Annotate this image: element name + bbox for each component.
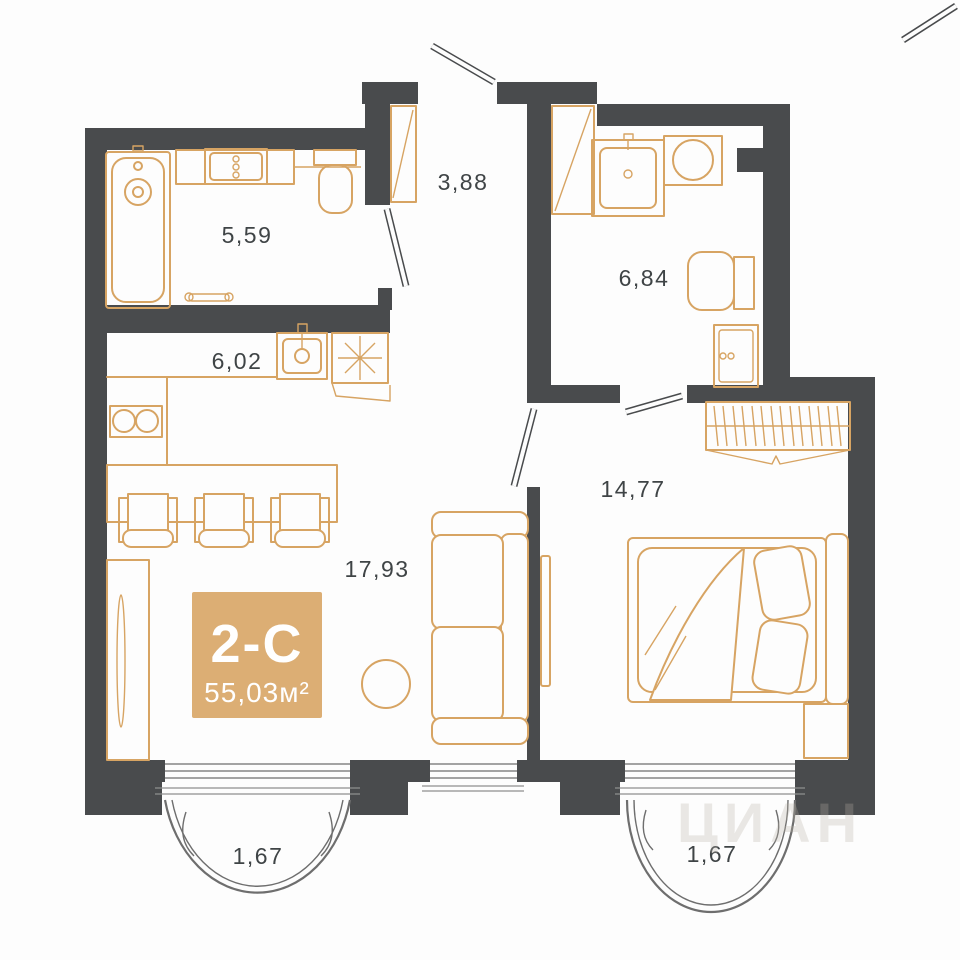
room-label-bathroom-2: 6,84 bbox=[619, 265, 670, 291]
bar-stool-icon bbox=[119, 494, 177, 547]
closet-hangers-icon bbox=[706, 402, 850, 464]
wall-right-outer bbox=[848, 377, 875, 815]
room-label-living-room: 17,93 bbox=[344, 556, 409, 582]
wall-top-bathroom1 bbox=[85, 128, 365, 150]
wall-bottom-2 bbox=[350, 760, 430, 782]
door-entrance bbox=[432, 46, 494, 82]
wall-top-bathroom2 bbox=[597, 104, 763, 126]
stove-icon bbox=[110, 406, 162, 437]
bar-stool-icon bbox=[195, 494, 253, 547]
wall-bathroom1-kitchen bbox=[85, 305, 390, 333]
window-balcony-left bbox=[155, 764, 360, 794]
floor-plan-canvas: 5,59 3,88 6,84 6,02 17,93 14,77 1,67 1,6… bbox=[0, 0, 960, 960]
floor-plan: 5,59 3,88 6,84 6,02 17,93 14,77 1,67 1,6… bbox=[0, 0, 960, 960]
wall-left-outer bbox=[85, 128, 107, 815]
door-bathroom-1 bbox=[387, 209, 406, 286]
room-label-bedroom: 14,77 bbox=[600, 476, 665, 502]
wall-pier-2 bbox=[350, 782, 408, 815]
table-icon bbox=[362, 660, 410, 708]
hob-star-icon bbox=[332, 333, 390, 401]
wall-pier-3 bbox=[560, 782, 620, 815]
wall-bedroom-top-left bbox=[551, 385, 620, 403]
bed-icon bbox=[628, 534, 848, 704]
wall-entrance-right bbox=[497, 82, 597, 104]
room-label-kitchen: 6,02 bbox=[212, 348, 263, 374]
window-middle bbox=[422, 764, 524, 791]
bar-stool-icon bbox=[271, 494, 329, 547]
nightstand-icon bbox=[804, 704, 848, 758]
door-bathroom-2 bbox=[626, 396, 682, 412]
room-label-hallway: 3,88 bbox=[438, 169, 489, 195]
kitchen-sink-icon bbox=[277, 324, 327, 379]
wall-bottom-3 bbox=[517, 760, 625, 782]
toilet-icon bbox=[314, 150, 356, 213]
bathtub-icon bbox=[106, 146, 170, 308]
bathroom-cabinet-icon bbox=[714, 325, 758, 387]
bathroom-2-fixtures bbox=[552, 106, 758, 387]
door-leaf-fragment bbox=[903, 6, 956, 40]
room-label-bathroom-1: 5,59 bbox=[222, 222, 273, 248]
window-balcony-right bbox=[615, 764, 805, 794]
wall-pier-1 bbox=[107, 782, 162, 815]
badge-type-label: 2-С bbox=[210, 614, 303, 674]
sofa-icon bbox=[432, 512, 528, 744]
toilet-icon bbox=[688, 252, 754, 310]
wardrobe-icon bbox=[107, 560, 149, 760]
pillow bbox=[752, 544, 811, 621]
tv-icon bbox=[541, 556, 550, 686]
wall-bathroom1-hall bbox=[365, 100, 390, 205]
wall-bottom-1 bbox=[85, 760, 165, 782]
room-label-balcony-left: 1,67 bbox=[233, 843, 284, 869]
apartment-badge: 2-С 55,03м² bbox=[192, 592, 322, 718]
vanity-sink-icon bbox=[176, 149, 294, 184]
shower-icon bbox=[552, 106, 594, 214]
washing-machine-icon bbox=[664, 136, 722, 185]
wall-bedroom-top-right bbox=[687, 385, 850, 403]
hall-wardrobe-icon bbox=[391, 106, 416, 202]
badge-area-label: 55,03м² bbox=[204, 677, 310, 708]
watermark-text: ЦИАН bbox=[677, 791, 863, 854]
wall-right-upper bbox=[763, 104, 790, 400]
wall-hall-bathroom2 bbox=[527, 104, 551, 403]
door-bedroom bbox=[514, 409, 534, 486]
vanity-sink-icon bbox=[592, 134, 664, 216]
wall-bottom-4 bbox=[795, 760, 875, 782]
wall-duct-shaft bbox=[737, 148, 763, 172]
towel-rail-icon bbox=[185, 293, 233, 301]
pillow bbox=[751, 619, 809, 696]
bedroom-fixtures bbox=[541, 402, 850, 758]
